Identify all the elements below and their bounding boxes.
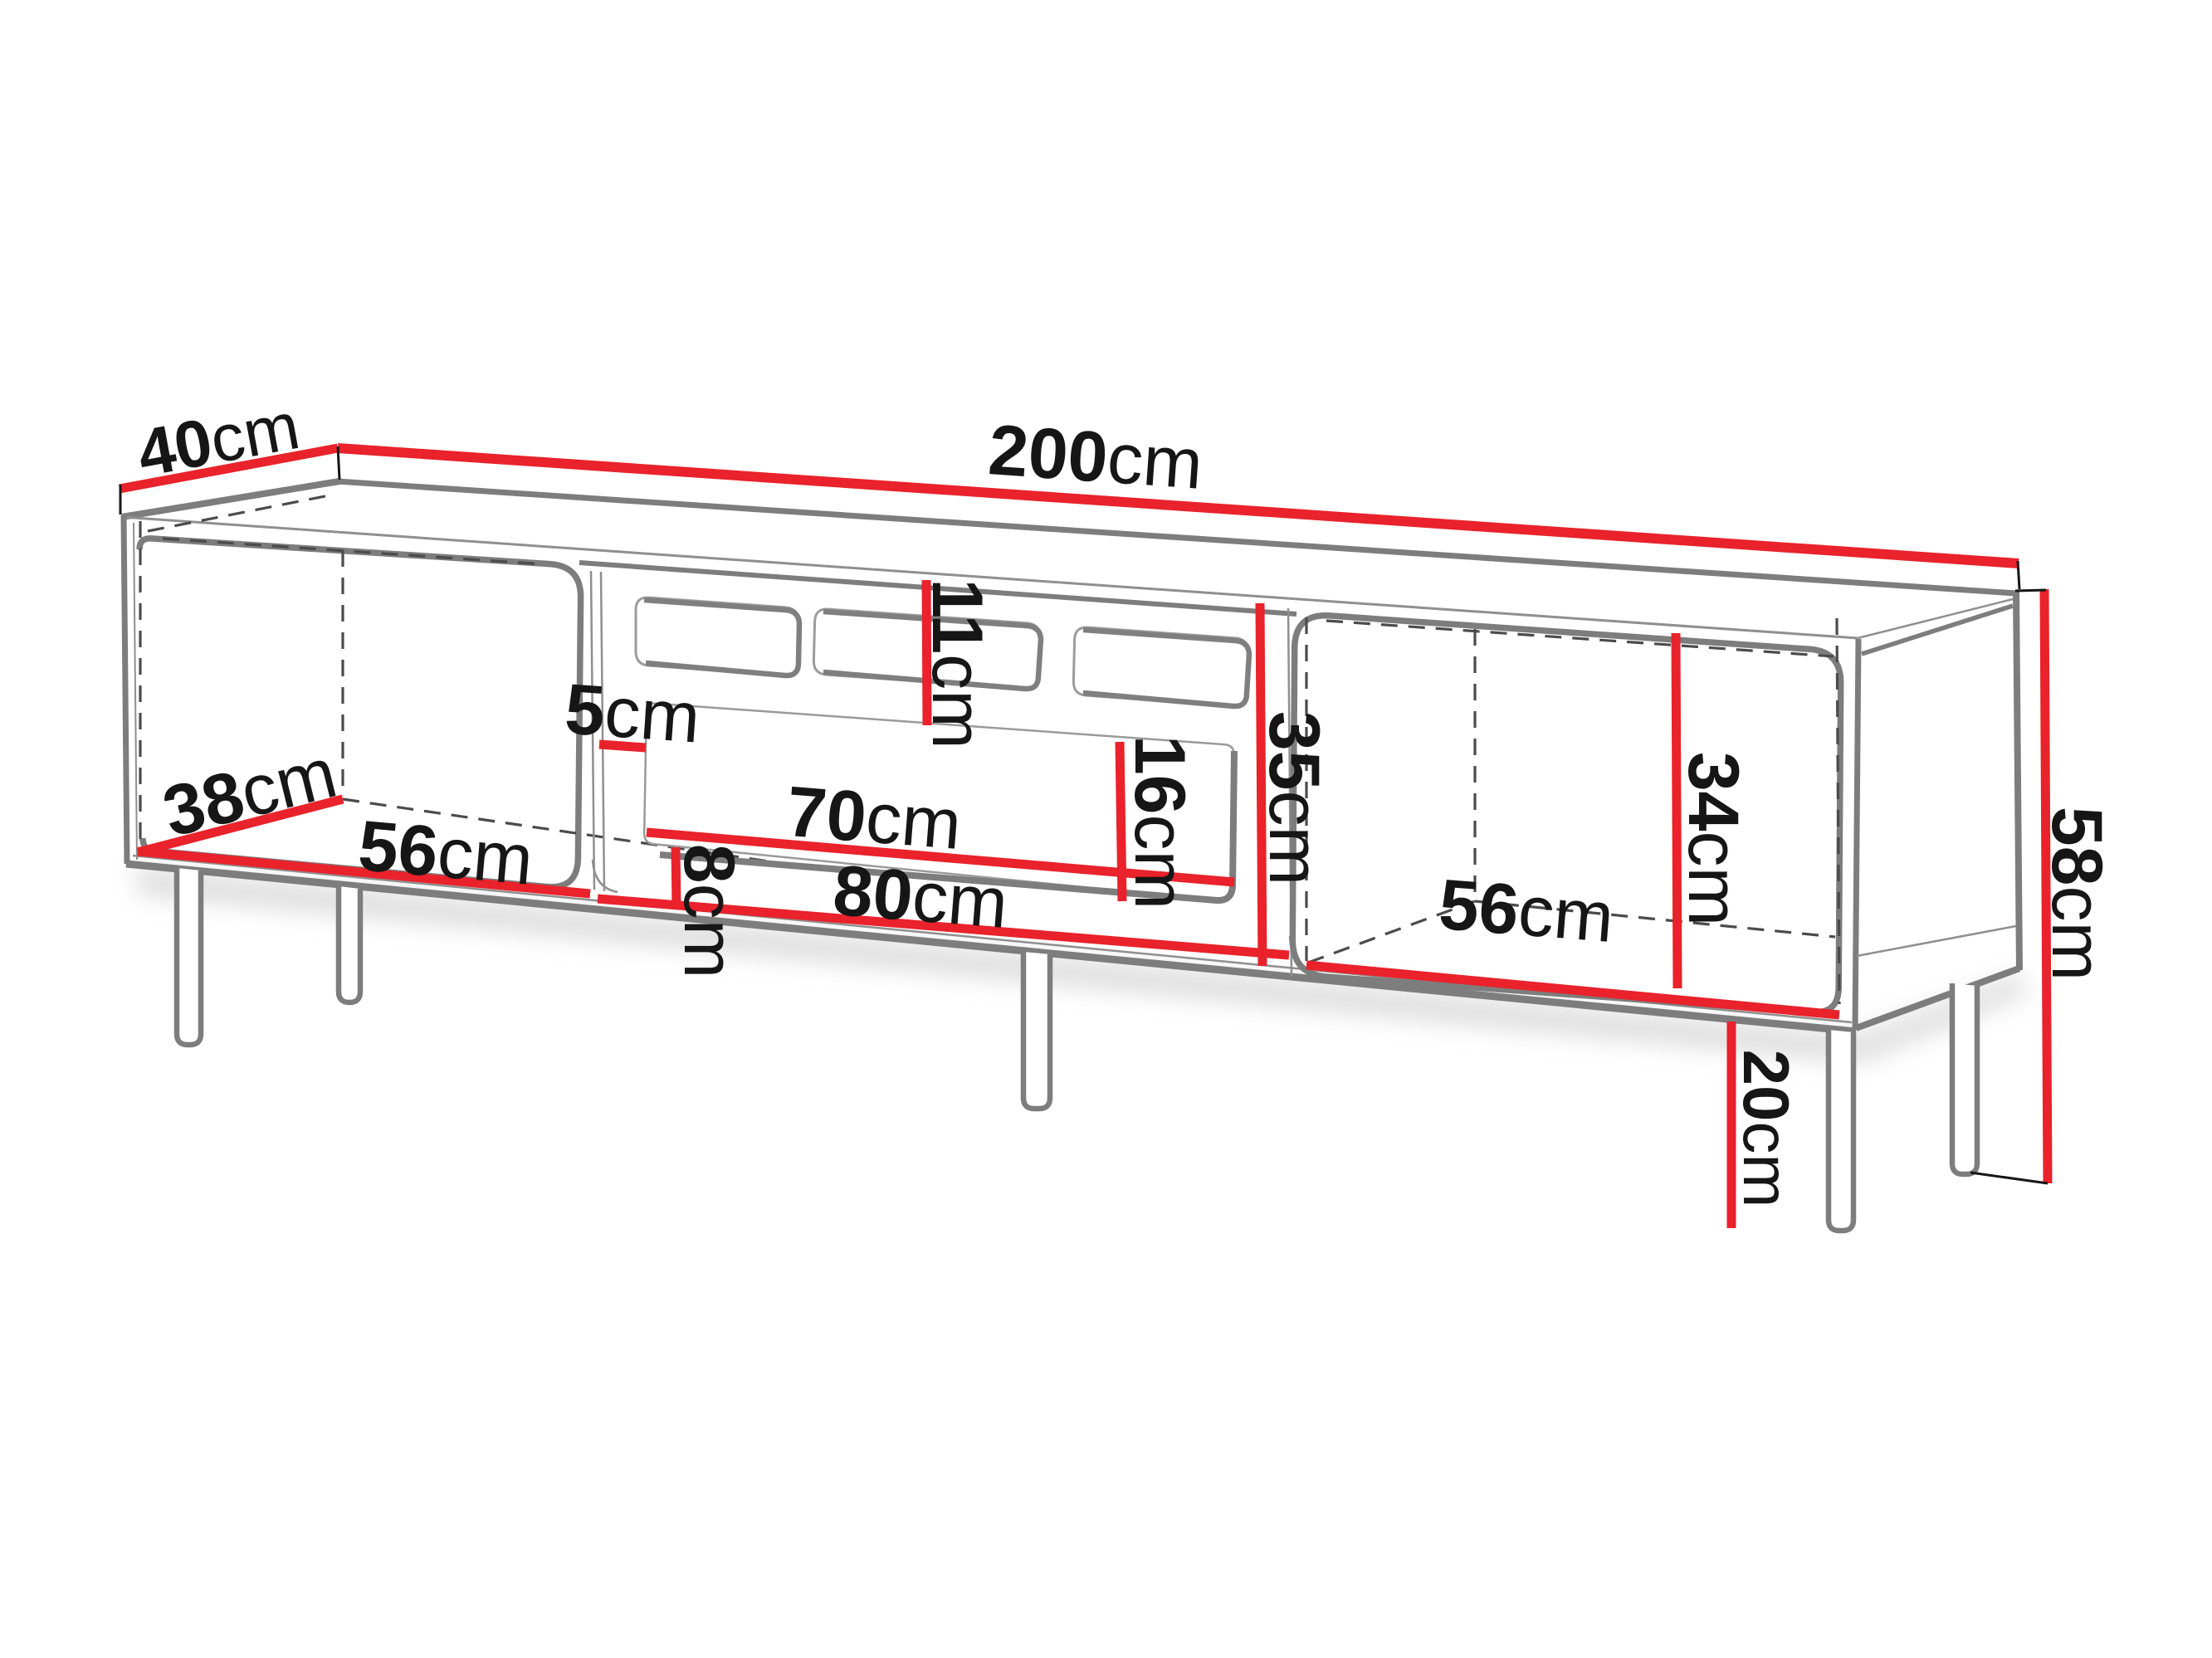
svg-text:16cm: 16cm <box>1120 735 1199 909</box>
svg-text:11cm: 11cm <box>917 578 997 749</box>
svg-text:56cm: 56cm <box>1436 865 1616 958</box>
svg-text:70cm: 70cm <box>784 772 964 865</box>
svg-text:34cm: 34cm <box>1673 752 1753 926</box>
svg-text:80cm: 80cm <box>830 851 1010 944</box>
svg-text:200cm: 200cm <box>986 410 1205 505</box>
svg-text:56cm: 56cm <box>355 806 536 900</box>
svg-text:20cm: 20cm <box>1730 1050 1803 1208</box>
svg-text:8cm: 8cm <box>669 844 749 978</box>
svg-text:5cm: 5cm <box>563 669 703 758</box>
svg-text:58cm: 58cm <box>2037 807 2117 981</box>
svg-text:35cm: 35cm <box>1254 711 1334 885</box>
